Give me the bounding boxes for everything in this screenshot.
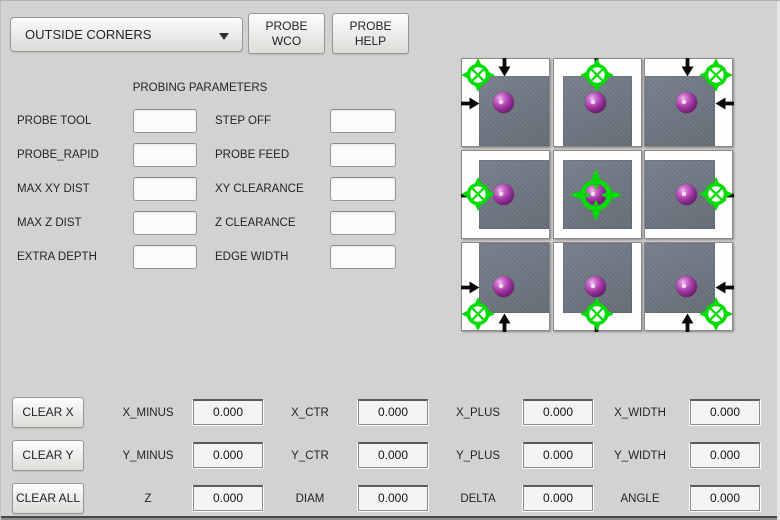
probe-ball-icon: [493, 276, 514, 297]
crosshair-icon: [461, 177, 495, 211]
result-label-x-width: X_WIDTH: [590, 406, 690, 420]
arrow-right-icon: [461, 97, 480, 110]
result-value-delta: 0.000: [523, 485, 593, 511]
result-value-diam: 0.000: [358, 485, 428, 511]
param-input-z-clearance[interactable]: [330, 211, 396, 235]
result-label-x-ctr: X_CTR: [260, 406, 360, 420]
probe-top-left-corner-button[interactable]: [461, 58, 550, 147]
result-value-angle: 0.000: [690, 485, 760, 511]
param-label-step-off: STEP OFF: [215, 114, 271, 128]
crosshair-icon: [699, 58, 733, 92]
probe-screen-window: OUTSIDE CORNERS PROBE WCO PROBE HELP PRO…: [0, 0, 780, 520]
param-input-probe-rapid[interactable]: [133, 143, 197, 167]
param-label-probe-rapid: PROBE_RAPID: [17, 148, 99, 162]
probe-bottom-edge-button[interactable]: [553, 242, 642, 331]
result-value-x-plus: 0.000: [523, 399, 593, 425]
clear-x-button[interactable]: CLEAR X: [12, 397, 84, 428]
result-value-z: 0.000: [193, 485, 263, 511]
probe-wco-button[interactable]: PROBE WCO: [248, 13, 325, 54]
param-input-probe-feed[interactable]: [330, 143, 396, 167]
probe-center-button[interactable]: [553, 150, 642, 239]
result-label-x-plus: X_PLUS: [428, 406, 528, 420]
crosshair-icon: [580, 297, 614, 331]
crosshair-icon: [569, 168, 623, 222]
result-value-y-width: 0.000: [690, 442, 760, 468]
result-value-y-plus: 0.000: [523, 442, 593, 468]
param-label-xy-clearance: XY CLEARANCE: [215, 182, 304, 196]
param-input-step-off[interactable]: [330, 109, 396, 133]
param-input-edge-width[interactable]: [330, 245, 396, 269]
probe-ball-icon: [493, 92, 514, 113]
probe-position-grid: [461, 58, 733, 331]
probing-parameters-title: PROBING PARAMETERS: [30, 81, 370, 95]
param-label-z-clearance: Z CLEARANCE: [215, 216, 296, 230]
result-label-y-width: Y_WIDTH: [590, 449, 690, 463]
probe-mode-dropdown[interactable]: OUTSIDE CORNERS: [10, 17, 243, 52]
crosshair-icon: [580, 58, 614, 92]
probe-ball-icon: [585, 92, 606, 113]
param-input-max-xy-dist[interactable]: [133, 177, 197, 201]
param-input-probe-tool[interactable]: [133, 109, 197, 133]
chevron-down-icon: [219, 33, 229, 40]
param-label-edge-width: EDGE WIDTH: [215, 250, 288, 264]
probe-ball-icon: [676, 184, 697, 205]
probe-help-button-line2: HELP: [355, 34, 386, 49]
probe-mode-selected-value: OUTSIDE CORNERS: [25, 28, 151, 42]
probe-ball-icon: [676, 92, 697, 113]
result-label-diam: DIAM: [260, 492, 360, 506]
probe-ball-icon: [585, 276, 606, 297]
clear-y-button[interactable]: CLEAR Y: [12, 440, 84, 471]
result-label-y-minus: Y_MINUS: [98, 449, 198, 463]
result-value-x-minus: 0.000: [193, 399, 263, 425]
probe-left-edge-button[interactable]: [461, 150, 550, 239]
crosshair-icon: [699, 297, 733, 331]
clear-x-button-label: CLEAR X: [22, 405, 73, 420]
result-value-x-width: 0.000: [690, 399, 760, 425]
probe-top-edge-button[interactable]: [553, 58, 642, 147]
arrow-up-icon: [681, 313, 694, 332]
result-label-y-ctr: Y_CTR: [260, 449, 360, 463]
probe-ball-icon: [493, 184, 514, 205]
param-input-extra-depth[interactable]: [133, 245, 197, 269]
result-label-angle: ANGLE: [590, 492, 690, 506]
crosshair-icon: [699, 177, 733, 211]
probe-wco-button-line2: WCO: [272, 34, 301, 49]
probe-ball-icon: [676, 276, 697, 297]
result-label-y-plus: Y_PLUS: [428, 449, 528, 463]
result-value-y-ctr: 0.000: [358, 442, 428, 468]
probe-right-edge-button[interactable]: [644, 150, 733, 239]
param-label-probe-feed: PROBE FEED: [215, 148, 289, 162]
probe-help-button-line1: PROBE: [349, 19, 391, 34]
result-value-y-minus: 0.000: [193, 442, 263, 468]
arrow-left-icon: [715, 281, 734, 294]
clear-all-button-label: CLEAR ALL: [16, 491, 80, 506]
clear-y-button-label: CLEAR Y: [22, 448, 73, 463]
result-label-z: Z: [98, 492, 198, 506]
probe-bottom-left-corner-button[interactable]: [461, 242, 550, 331]
param-label-probe-tool: PROBE TOOL: [17, 114, 91, 128]
arrow-left-icon: [715, 97, 734, 110]
probe-top-right-corner-button[interactable]: [644, 58, 733, 147]
probe-help-button[interactable]: PROBE HELP: [332, 13, 409, 54]
arrow-up-icon: [498, 313, 511, 332]
probe-wco-button-line1: PROBE: [265, 19, 307, 34]
crosshair-icon: [461, 297, 495, 331]
arrow-right-icon: [461, 281, 480, 294]
param-label-extra-depth: EXTRA DEPTH: [17, 250, 97, 264]
param-input-xy-clearance[interactable]: [330, 177, 396, 201]
param-label-max-z-dist: MAX Z DIST: [17, 216, 82, 230]
clear-all-button[interactable]: CLEAR ALL: [12, 483, 84, 514]
arrow-down-icon: [681, 58, 694, 77]
arrow-down-icon: [498, 58, 511, 77]
result-value-x-ctr: 0.000: [358, 399, 428, 425]
param-label-max-xy-dist: MAX XY DIST: [17, 182, 90, 196]
param-input-max-z-dist[interactable]: [133, 211, 197, 235]
crosshair-icon: [461, 58, 495, 92]
result-label-delta: DELTA: [428, 492, 528, 506]
probe-bottom-right-corner-button[interactable]: [644, 242, 733, 331]
result-label-x-minus: X_MINUS: [98, 406, 198, 420]
